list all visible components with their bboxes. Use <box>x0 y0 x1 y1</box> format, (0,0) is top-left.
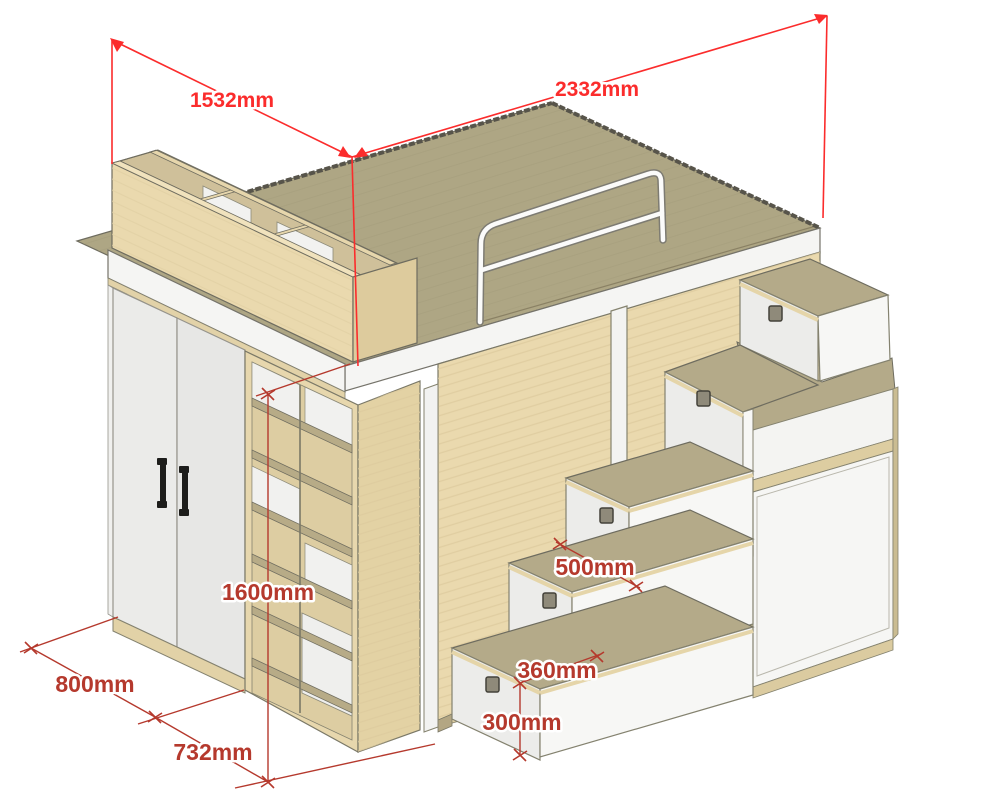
dim-label-2332: 2332mm <box>555 78 639 101</box>
handle-foot <box>179 466 189 473</box>
drawer-handle-icon <box>600 508 613 523</box>
dim-label-1600: 1600mm <box>222 579 314 605</box>
dim-label-500: 500mm <box>555 554 634 580</box>
handle-foot <box>157 458 167 465</box>
dimension-labels-top: 1532mm 2332mm <box>190 78 639 112</box>
wardrobe-door-left <box>113 288 177 647</box>
wardrobe <box>108 285 245 693</box>
tick <box>24 642 38 654</box>
shelf-end-panel <box>353 258 417 362</box>
drawer-handle-icon <box>697 391 710 406</box>
shelving-unit <box>245 351 438 752</box>
furniture <box>77 103 898 760</box>
drawer-handle-icon <box>486 677 499 692</box>
drawer-handle-icon <box>543 593 556 608</box>
drawer-handle-icon <box>769 306 782 321</box>
cabinet-right-edge <box>893 387 898 639</box>
handle-foot <box>179 509 189 516</box>
drawing-canvas: 1532mm 2332mm 1600mm 800mm 732mm 500 <box>0 0 1000 798</box>
witness-line <box>235 744 435 788</box>
dim-label-300: 300mm <box>482 709 561 735</box>
handle-foot <box>157 501 167 508</box>
loft-bed-illustration: 1532mm 2332mm 1600mm 800mm 732mm 500 <box>0 0 1000 798</box>
side-wall-grain <box>358 381 420 752</box>
handle-bar <box>182 469 188 513</box>
handle-bar <box>160 461 166 505</box>
dim-label-732: 732mm <box>173 739 252 765</box>
shelving-end-post <box>424 384 438 732</box>
witness-line <box>823 16 827 218</box>
wardrobe-side-sliver <box>108 285 113 617</box>
dim-label-800: 800mm <box>55 671 134 697</box>
dim-label-360: 360mm <box>517 657 596 683</box>
dim-label-1532: 1532mm <box>190 89 274 112</box>
